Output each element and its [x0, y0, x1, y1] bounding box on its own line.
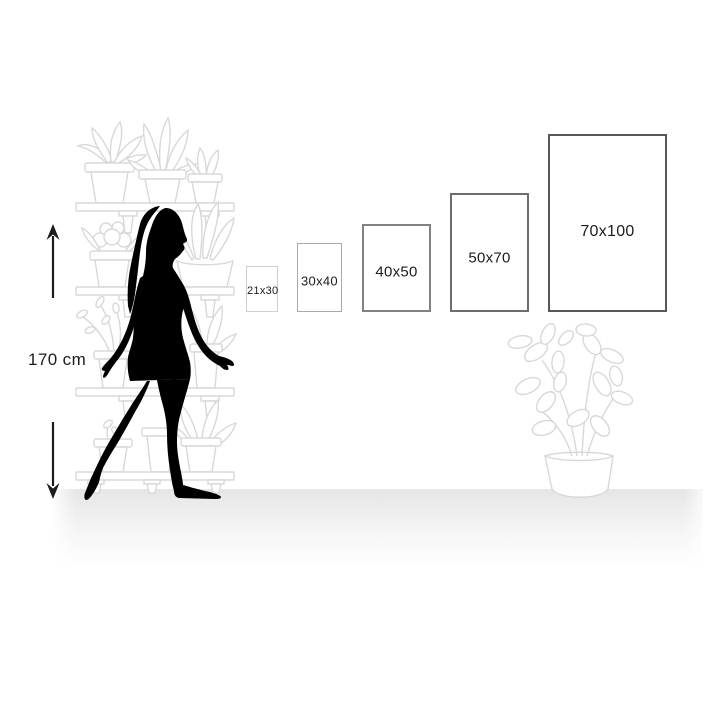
size-frame-30x40: 30x40: [297, 243, 342, 312]
size-frame-21x30: 21x30: [246, 266, 278, 312]
size-label: 70x100: [550, 223, 665, 241]
height-label: 170 cm: [28, 350, 98, 370]
size-frame-40x50: 40x50: [362, 224, 431, 312]
size-label: 21x30: [247, 285, 277, 297]
floor-shadow: [55, 489, 703, 577]
poster-size-comparison-diagram: 170 cm 21x3030x4040x5050x7070x100: [0, 0, 720, 720]
size-label: 30x40: [298, 273, 341, 288]
size-label: 50x70: [452, 250, 527, 267]
size-label: 40x50: [364, 264, 429, 281]
size-frame-70x100: 70x100: [548, 134, 667, 312]
potted-plant-illustration: [507, 321, 634, 497]
scene-illustration: [0, 0, 720, 720]
size-frame-50x70: 50x70: [450, 193, 529, 312]
